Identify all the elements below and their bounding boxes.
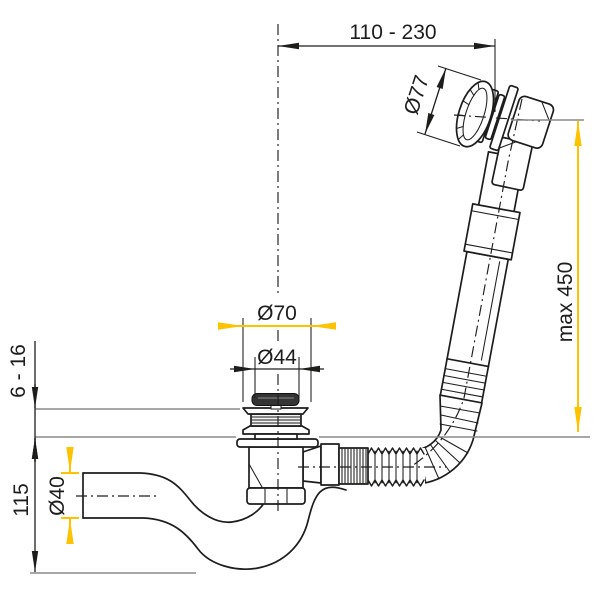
- trap-outer-wall: [83, 487, 346, 569]
- lower-tube: [447, 252, 508, 368]
- pipe-diameter-label: Ø40: [46, 476, 69, 516]
- dim-outlet-pipe-diameter: Ø40: [46, 450, 79, 544]
- outlet-taper: [303, 446, 321, 483]
- corrugated-hose: [367, 448, 425, 486]
- trap-inner-wall: [83, 473, 264, 522]
- panel-thickness-label: 6 - 16: [7, 344, 30, 398]
- outlet-nut: [321, 444, 339, 485]
- drain-body: [249, 447, 303, 488]
- hose-length-label: max 450: [554, 262, 577, 343]
- cap-diameter-label: Ø77: [400, 73, 434, 118]
- dim-max-hose-length: max 450: [554, 121, 578, 432]
- flange-diameter-label: Ø70: [257, 302, 297, 325]
- dim-trap-depth: 115: [10, 438, 35, 572]
- flange-neck: [255, 434, 297, 439]
- dim-panel-thickness: 6 - 16: [7, 341, 35, 462]
- plug-diameter-label: Ø44: [257, 346, 297, 369]
- overflow-head: [449, 77, 555, 191]
- span-label: 110 - 230: [349, 21, 436, 44]
- trap-depth-label: 115: [10, 483, 33, 516]
- drain-side-outlet: [303, 444, 368, 485]
- bath-siphon-technical-drawing: 110 - 230 Ø77 max 450 Ø70 Ø44 6 - 16: [0, 0, 600, 600]
- coupling-sleeve: [464, 204, 520, 260]
- plug-cap: [252, 394, 299, 406]
- dim-installation-span: 110 - 230: [278, 21, 495, 112]
- hex-nut: [247, 488, 305, 504]
- lower-cone-plate: [243, 426, 309, 434]
- dim-plug-diameter: Ø44: [230, 346, 324, 398]
- p-trap: [83, 473, 346, 569]
